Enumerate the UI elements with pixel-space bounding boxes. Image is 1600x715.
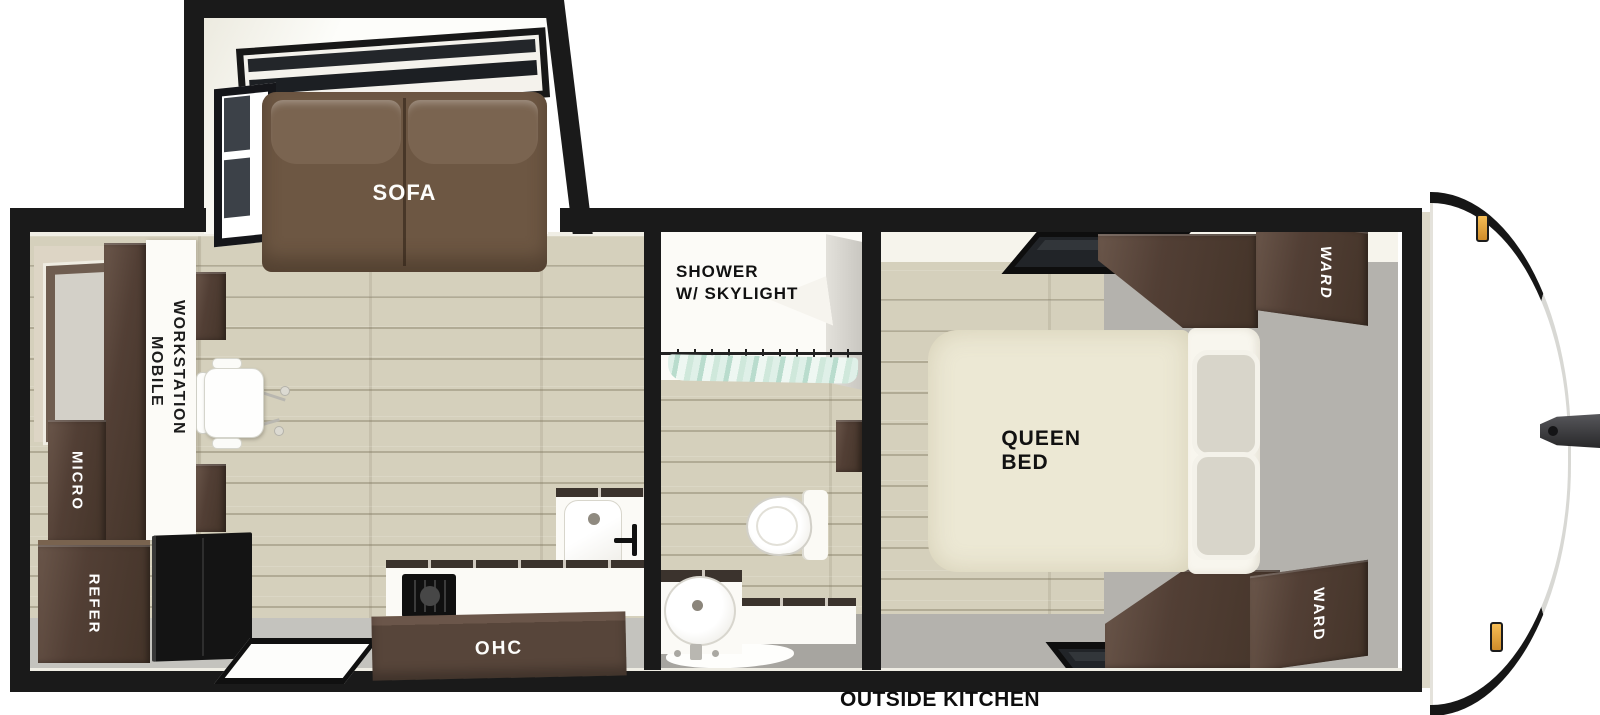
pantry-cabinet <box>104 243 146 543</box>
bed-pillow-top <box>1192 350 1260 458</box>
sink-drain <box>588 513 600 525</box>
queen-bed-label: QUEEN BED <box>1001 427 1127 475</box>
toilet-platform <box>738 598 856 644</box>
chair-armrest <box>212 358 242 369</box>
faucet-handle <box>674 650 681 657</box>
faucet-stem <box>614 538 634 543</box>
wall-right-front <box>1402 208 1422 692</box>
sofa-back-cushion <box>408 100 538 164</box>
window-pane <box>224 95 250 152</box>
ohc-cabinet: OHC <box>371 611 626 680</box>
wall-top-left-segment <box>10 208 206 232</box>
fireplace-entertainment-unit <box>152 532 252 661</box>
wall-top-right-segment <box>560 208 1422 232</box>
slideout-wall-left <box>184 0 204 230</box>
microwave-label: MICRO <box>69 451 86 511</box>
bathroom-wall-left <box>644 230 661 670</box>
toilet-seat-ring <box>756 506 798 546</box>
refrigerator-label: REFER <box>86 574 103 635</box>
counter-edge <box>386 560 644 568</box>
shower-label-line1: SHOWER <box>676 262 759 282</box>
chair-caster <box>274 426 284 436</box>
wardrobe-top-label: WARD <box>1317 245 1334 301</box>
marker-light-top <box>1476 214 1489 242</box>
wardrobe-bottom-label: WARD <box>1310 587 1327 643</box>
microwave-cabinet: MICRO <box>48 420 106 542</box>
sofa: SOFA <box>262 92 547 272</box>
office-chair <box>196 356 288 448</box>
bathroom-wall-cabinet <box>836 420 862 472</box>
ohc-label: OHC <box>475 637 524 660</box>
toilet <box>742 486 834 566</box>
shower-label-line2: W/ SKYLIGHT <box>676 284 798 304</box>
chair-caster <box>280 386 290 396</box>
faucet-handle <box>712 650 719 657</box>
workstation-label-line1: MOBILE <box>147 336 165 407</box>
outside-kitchen-text: OUTSIDE KITCHEN <box>840 688 1040 711</box>
marker-light-bottom <box>1490 622 1503 652</box>
shower-curtain <box>668 354 858 383</box>
bed-pillow-bottom <box>1192 452 1260 560</box>
wardrobe-top: WARD <box>1256 216 1368 326</box>
wall-left-rear <box>10 208 30 692</box>
refrigerator-cabinet: REFER <box>38 540 150 663</box>
sink-cabinet-counter-edge <box>556 488 644 497</box>
floorplan-canvas: SOFA MICRO REFER MOBILE WORKSTATION <box>0 0 1600 715</box>
window-pane <box>224 157 250 218</box>
basin-drain <box>692 600 703 611</box>
bathroom-wall-right <box>862 230 881 670</box>
chair-seat <box>204 368 264 438</box>
wardrobe-bottom: WARD <box>1250 560 1368 673</box>
fireplace-panel-seam <box>202 538 204 656</box>
chair-armrest <box>212 438 242 449</box>
stove-burner <box>420 586 440 606</box>
bathroom-faucet <box>690 644 702 660</box>
slideout-wall-right <box>544 0 593 234</box>
desk-overhead-cabinet-lower <box>196 464 226 532</box>
platform-edge <box>738 598 856 606</box>
outside-kitchen-label: OUTSIDE KITCHEN <box>700 688 1180 712</box>
workstation-label-line2: WORKSTATION <box>169 300 187 435</box>
sofa-back-cushion <box>271 100 401 164</box>
sofa-label: SOFA <box>373 180 437 206</box>
desk-overhead-cabinet-upper <box>196 272 226 340</box>
queen-bed-mattress: QUEEN BED <box>928 330 1190 572</box>
hitch-latch-notch <box>1548 426 1558 436</box>
bathroom-sink-basin <box>664 576 736 646</box>
stove-cooktop <box>402 574 456 618</box>
slideout-wall-top <box>184 0 564 18</box>
